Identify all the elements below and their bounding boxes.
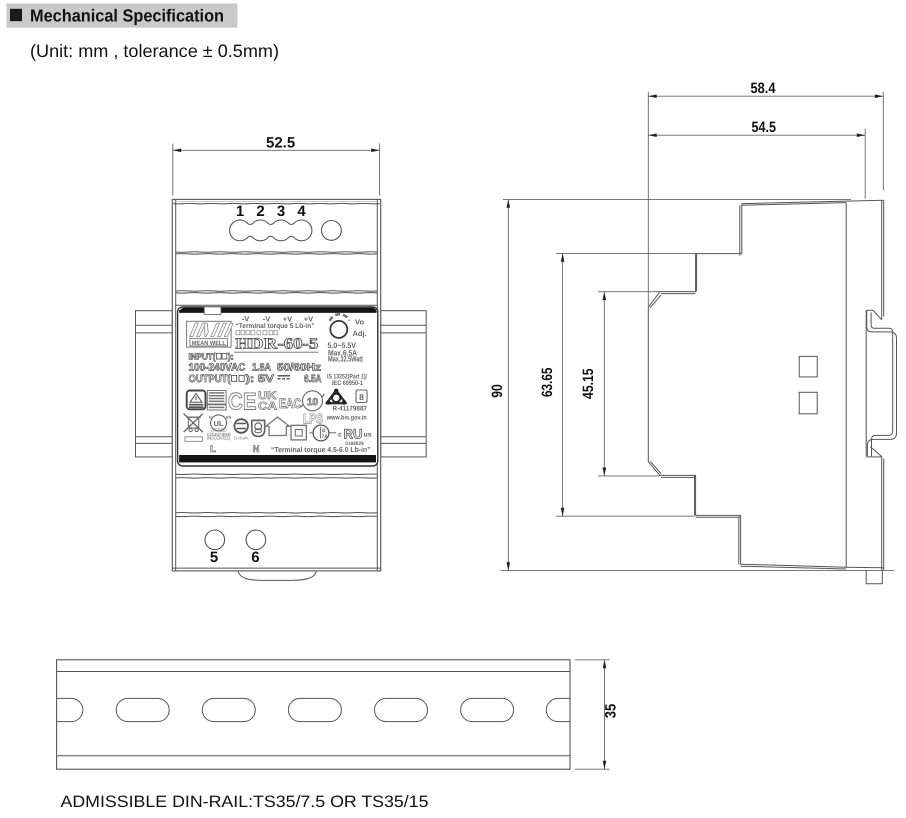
svg-text:10: 10: [307, 397, 319, 408]
svg-text:2: 2: [256, 203, 264, 220]
svg-text:50/60Hz: 50/60Hz: [277, 361, 321, 373]
svg-text:CE: CE: [228, 388, 257, 415]
svg-text:):: ):: [228, 351, 234, 361]
svg-text:IND.CONT.EQ.: IND.CONT.EQ.: [207, 435, 231, 440]
svg-text:(Unit: mm , tolerance ± 0.5mm): (Unit: mm , tolerance ± 0.5mm): [30, 41, 279, 61]
svg-text:Max.32.5Watt: Max.32.5Watt: [328, 354, 363, 363]
svg-text:www.bis.gov.in: www.bis.gov.in: [326, 415, 367, 422]
svg-text:“Terminal torque 4.5-6.0 Lb-in: “Terminal torque 4.5-6.0 Lb-in”: [271, 445, 371, 454]
svg-text:3: 3: [277, 203, 285, 220]
svg-text:90: 90: [489, 384, 506, 398]
svg-text:35: 35: [603, 704, 620, 719]
svg-text:us: us: [364, 432, 372, 439]
svg-text:4: 4: [297, 203, 306, 220]
svg-text:7A: 7A: [322, 434, 329, 440]
svg-text:c: c: [209, 415, 212, 421]
svg-text:“Terminal torque 5 Lb-in”: “Terminal torque 5 Lb-in”: [236, 322, 315, 330]
svg-text:R-41179887: R-41179887: [333, 406, 368, 413]
svg-text:OUTPUT(: OUTPUT(: [189, 373, 231, 385]
svg-text:Adj.: Adj.: [353, 329, 367, 338]
svg-text:54.5: 54.5: [752, 119, 777, 136]
svg-text:6: 6: [251, 549, 259, 566]
svg-text:100-240VAC: 100-240VAC: [189, 361, 246, 373]
svg-text:D-mark: D-mark: [234, 436, 250, 441]
svg-text:EAC: EAC: [279, 395, 301, 411]
svg-text:LPS: LPS: [303, 410, 323, 426]
svg-text:us: us: [226, 415, 232, 421]
svg-text:Mechanical Specification: Mechanical Specification: [30, 6, 224, 26]
svg-text:L: L: [210, 444, 216, 455]
svg-text:8: 8: [359, 392, 364, 402]
svg-text:RU: RU: [344, 427, 363, 442]
svg-text:1: 1: [236, 203, 244, 220]
svg-text:INPUT(: INPUT(: [189, 351, 216, 361]
svg-text:CA: CA: [258, 400, 277, 412]
svg-text:5: 5: [210, 549, 218, 566]
svg-text:63.65: 63.65: [539, 368, 556, 398]
svg-text:45.15: 45.15: [580, 368, 597, 399]
svg-text:IEC 60950-1: IEC 60950-1: [332, 380, 363, 387]
svg-text:MEAN WELL: MEAN WELL: [192, 340, 226, 347]
svg-text:6.5A: 6.5A: [304, 373, 322, 385]
svg-text:ADMISSIBLE DIN-RAIL:TS35/7.5 O: ADMISSIBLE DIN-RAIL:TS35/7.5 OR TS35/15: [61, 793, 429, 811]
svg-text:Vo: Vo: [355, 318, 364, 327]
svg-text:HDR-60-5: HDR-60-5: [235, 336, 318, 353]
svg-text:): 5V: ): 5V: [246, 373, 275, 385]
svg-text:58.4: 58.4: [751, 80, 777, 97]
svg-text:52.5: 52.5: [266, 135, 295, 152]
svg-text:c: c: [338, 432, 342, 439]
svg-text:N: N: [253, 444, 260, 455]
svg-text:1.8A: 1.8A: [252, 361, 271, 373]
